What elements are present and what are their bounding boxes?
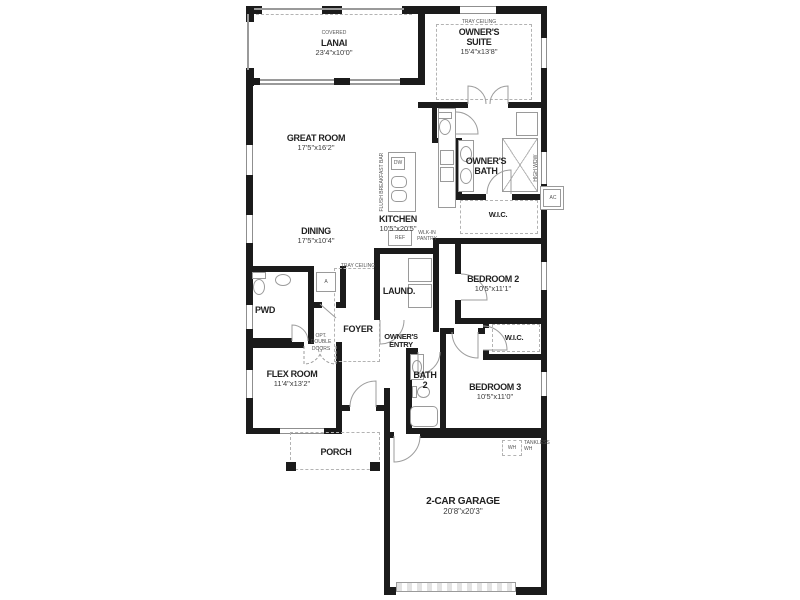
garage-entry-door-arc bbox=[394, 436, 420, 462]
window bbox=[541, 152, 547, 184]
note-air-handler: A bbox=[321, 279, 331, 285]
sliding-door bbox=[350, 79, 400, 81]
room-label-owners-bath: OWNER'S BATH bbox=[462, 156, 510, 176]
window bbox=[246, 145, 253, 175]
screen-wall bbox=[252, 8, 404, 10]
bathtub-icon bbox=[410, 406, 438, 427]
garage-door bbox=[396, 582, 516, 592]
room-label-owners-entry: OWNER'S ENTRY bbox=[381, 333, 421, 350]
room-label-garage: 2-CAR GARAGE 20'8"x20'3" bbox=[426, 496, 500, 517]
wall bbox=[334, 78, 350, 85]
wall bbox=[384, 388, 390, 595]
sliding-door bbox=[350, 83, 400, 85]
room-label-foyer: FOYER bbox=[343, 324, 373, 334]
room-label-kitchen: KITCHEN 10'5"x20'5" bbox=[379, 214, 417, 233]
linen-closet bbox=[516, 112, 538, 136]
wall bbox=[483, 354, 547, 360]
window bbox=[246, 305, 253, 329]
wall bbox=[455, 238, 461, 274]
room-label-great-room: GREAT ROOM 17'5"x16'2" bbox=[287, 133, 345, 152]
note-ac: AC bbox=[548, 195, 558, 201]
note-high-window: HIGH WDW bbox=[533, 150, 539, 186]
wall bbox=[440, 328, 446, 434]
room-label-bedroom2: BEDROOM 2 10'5"x11'1" bbox=[467, 274, 519, 293]
ceiling-note: TRAY CEILING bbox=[450, 20, 508, 26]
ceiling-note: TRAY CEILING bbox=[341, 263, 375, 269]
ceiling-note: COVERED bbox=[316, 31, 353, 37]
wall bbox=[433, 238, 439, 332]
screen-wall bbox=[247, 14, 249, 70]
wall bbox=[384, 587, 396, 595]
note-refrigerator: REF bbox=[390, 235, 410, 241]
wall bbox=[446, 328, 454, 334]
sink-icon bbox=[391, 176, 407, 188]
wall bbox=[496, 6, 547, 14]
wall bbox=[374, 248, 439, 254]
room-label-owners-wic: W.I.C. bbox=[489, 211, 508, 219]
wall bbox=[483, 318, 489, 328]
wall-oven-icon bbox=[440, 150, 454, 165]
wall bbox=[246, 175, 253, 215]
wall bbox=[246, 338, 292, 344]
wall-oven-icon bbox=[440, 167, 454, 182]
room-label-flex: FLEX ROOM 11'4"x13'2" bbox=[267, 369, 318, 388]
room-label-dining: DINING 17'5"x10'4" bbox=[298, 226, 335, 245]
toilet-icon bbox=[439, 119, 451, 135]
wall bbox=[433, 238, 547, 244]
wall bbox=[246, 428, 280, 434]
wall bbox=[418, 6, 425, 85]
window bbox=[246, 370, 253, 398]
wall bbox=[541, 68, 547, 152]
front-door-arc bbox=[350, 381, 376, 407]
wall bbox=[541, 6, 547, 38]
wall bbox=[336, 405, 350, 411]
floor-plan: COVERED LANAI 23'4"x10'0" TRAY CEILING O… bbox=[0, 0, 800, 600]
wall bbox=[374, 248, 380, 320]
toilet-icon bbox=[438, 112, 452, 119]
sliding-door bbox=[260, 83, 334, 85]
room-label-laundry: LAUND. bbox=[383, 286, 415, 296]
pwd-door-arc bbox=[292, 325, 308, 341]
wall bbox=[432, 108, 437, 140]
toilet-icon bbox=[253, 279, 265, 295]
wc-door-arc bbox=[456, 112, 478, 134]
wall bbox=[314, 302, 322, 308]
room-label-bedroom3: BEDROOM 3 10'5"x11'0" bbox=[469, 382, 521, 401]
note-opt-double-doors: OPT. DOUBLE DOORS bbox=[308, 333, 334, 352]
wall-post bbox=[286, 462, 296, 471]
sink-icon bbox=[275, 274, 291, 286]
window bbox=[541, 262, 547, 290]
note-flush-breakfast-bar: FLUSH BREAKFAST BAR bbox=[379, 152, 385, 212]
window bbox=[541, 38, 547, 68]
room-label-lanai: COVERED LANAI 23'4"x10'0" bbox=[316, 31, 353, 57]
wall bbox=[508, 102, 547, 108]
note-water-heater: WH bbox=[505, 445, 519, 451]
wall bbox=[420, 432, 547, 438]
room-label-wic2: W.I.C. bbox=[505, 334, 524, 342]
sliding-door bbox=[260, 79, 334, 81]
wall bbox=[246, 78, 253, 145]
window bbox=[541, 372, 547, 396]
roof-line bbox=[256, 14, 412, 15]
note-dishwasher: DW bbox=[392, 160, 404, 166]
sink-icon bbox=[391, 190, 407, 202]
washer-icon bbox=[408, 258, 432, 282]
wall bbox=[541, 396, 547, 595]
bedroom3-door-arc bbox=[452, 332, 478, 358]
room-label-bath2: BATH 2 bbox=[411, 370, 439, 390]
toilet-icon bbox=[252, 272, 266, 279]
wall bbox=[516, 587, 547, 595]
note-tankless: TANKLESS WH bbox=[524, 440, 550, 453]
room-label-pwd: PWD bbox=[255, 305, 275, 315]
door-swings bbox=[0, 0, 800, 600]
room-label-porch: PORCH bbox=[320, 447, 351, 457]
window bbox=[246, 215, 253, 243]
wall bbox=[478, 328, 485, 334]
note-pantry: WLK-IN PANTRY bbox=[414, 230, 440, 243]
window bbox=[460, 6, 498, 14]
wall-post bbox=[370, 462, 380, 471]
wall bbox=[246, 329, 253, 370]
room-label-owners-suite: TRAY CEILING OWNER'S SUITE 15'4"x13'8" bbox=[450, 20, 508, 56]
wall bbox=[384, 432, 394, 438]
